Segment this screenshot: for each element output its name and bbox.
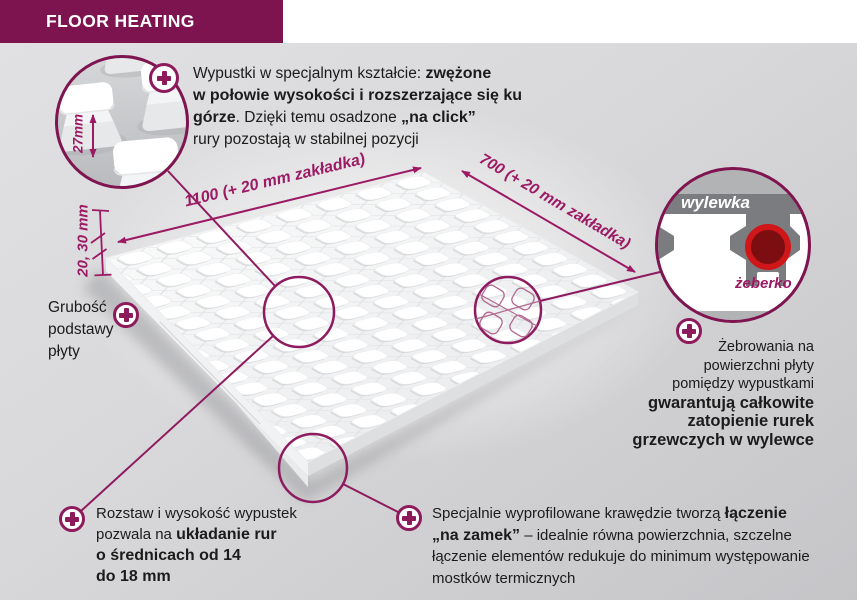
callout-lock-line2: „na zamek” – idealnie równa powierzchnia… xyxy=(432,525,810,547)
callout-spacing-bold: układanie rur xyxy=(176,526,276,543)
callout-nubs-text: Wypustki w specjalnym kształcie: xyxy=(193,65,425,82)
dimension-thickness-label: 20, 30 mm xyxy=(75,191,92,291)
callout-lock-text: – idealnie równa powierzchnia, szczelne xyxy=(520,527,792,544)
callout-spacing-line1: Rozstaw i wysokość wypustek xyxy=(96,503,297,524)
callout-nubs-bold: górze xyxy=(193,109,236,126)
callout-lock-line1: Specjalnie wyprofilowane krawędzie tworz… xyxy=(432,503,810,525)
inset-cross-section xyxy=(655,167,813,323)
callout-lock: Specjalnie wyprofilowane krawędzie tworz… xyxy=(432,503,810,589)
callout-ribbing-line: Żebrowania na xyxy=(552,338,814,357)
plus-icon-spacing xyxy=(59,506,85,532)
callout-ribbing-line-bold: zatopienie rurek xyxy=(552,412,814,431)
callout-nubs: Wypustki w specjalnym kształcie: zwężone… xyxy=(193,63,522,151)
callout-nubs-text: . Dzięki temu osadzone xyxy=(236,109,401,126)
callout-nubs-line3: górze. Dzięki temu osadzone „na click” xyxy=(193,107,522,129)
callout-spacing-line3: o średnicach od 14 xyxy=(96,545,297,566)
callout-ribbing: Żebrowania na powierzchni płyty pomiędzy… xyxy=(552,338,814,449)
callout-lock-bold: łączenie xyxy=(725,505,787,522)
rib-label: żeberko xyxy=(735,275,792,292)
dimension-nub-height-label: 27mm xyxy=(71,100,86,168)
header-bar: FLOOR HEATING xyxy=(0,0,283,43)
callout-nubs-bold: zwężone xyxy=(425,65,491,82)
plus-icon-thickness xyxy=(113,302,139,328)
callout-spacing-line4: do 18 mm xyxy=(96,566,297,587)
callout-ribbing-line: powierzchni płyty xyxy=(552,357,814,376)
callout-nubs-line1: Wypustki w specjalnym kształcie: zwężone xyxy=(193,63,522,85)
heating-pipe-cross-section xyxy=(748,227,788,267)
plus-icon-nubs xyxy=(149,63,179,93)
callout-lock-line3: łączenie elementów redukuje do minimum w… xyxy=(432,546,810,568)
label-base-thickness: Grubość podstawy płyty xyxy=(48,297,113,363)
page-title: FLOOR HEATING xyxy=(0,0,283,43)
callout-spacing-line2: pozwala na układanie rur xyxy=(96,524,297,545)
callout-nubs-line2: w połowie wysokości i rozszerzające się … xyxy=(193,85,522,107)
callout-spacing: Rozstaw i wysokość wypustek pozwala na u… xyxy=(96,503,297,587)
callout-spacing-text: pozwala na xyxy=(96,526,176,543)
label-base-thickness-line: podstawy xyxy=(48,319,113,341)
callout-lock-bold: „na zamek” xyxy=(432,527,520,544)
callout-lock-line4: mostków termicznych xyxy=(432,568,810,590)
callout-ribbing-line-bold: gwarantują całkowite xyxy=(552,394,814,413)
label-base-thickness-line: płyty xyxy=(48,341,113,363)
callout-lock-text: Specjalnie wyprofilowane krawędzie tworz… xyxy=(432,505,725,522)
label-base-thickness-line: Grubość xyxy=(48,297,113,319)
callout-nubs-bold: „na click” xyxy=(401,109,476,126)
plus-icon-lock xyxy=(396,505,422,531)
callout-ribbing-line-bold: grzewczych w wylewce xyxy=(552,431,814,450)
callout-ribbing-line: pomiędzy wypustkami xyxy=(552,375,814,394)
floor-heating-infographic: FLOOR HEATING Wypustki w specjalnym kszt… xyxy=(0,0,857,600)
screed-label: wylewka xyxy=(681,193,750,213)
